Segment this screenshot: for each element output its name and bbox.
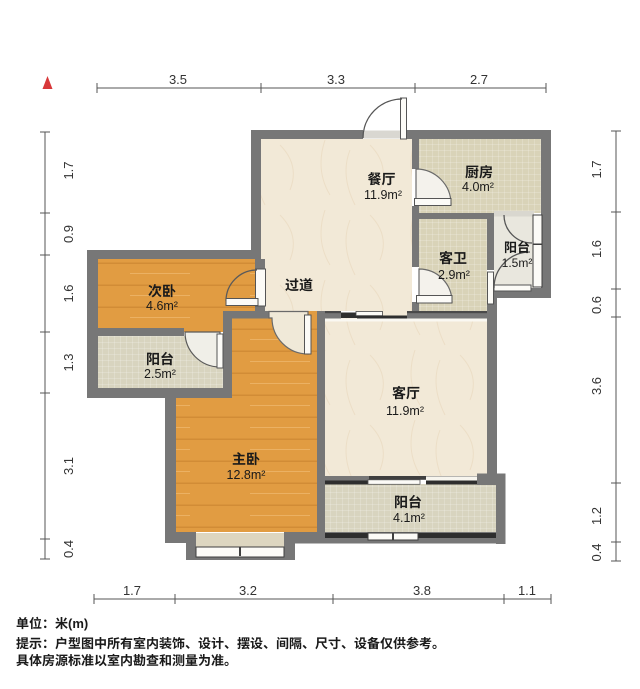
svg-text:4.6m²: 4.6m² <box>146 299 178 313</box>
svg-text:1.6: 1.6 <box>61 284 76 302</box>
svg-text:2.5m²: 2.5m² <box>144 367 176 381</box>
svg-text:3.5: 3.5 <box>169 72 187 87</box>
svg-text:3.3: 3.3 <box>327 72 345 87</box>
svg-text:4.1m²: 4.1m² <box>393 511 425 525</box>
svg-text:3.6: 3.6 <box>589 377 604 395</box>
svg-text:1.1: 1.1 <box>518 583 536 598</box>
svg-text:3.8: 3.8 <box>413 583 431 598</box>
svg-text:0.6: 0.6 <box>589 296 604 314</box>
svg-text:2.9m²: 2.9m² <box>438 268 470 282</box>
svg-text:2.7: 2.7 <box>470 72 488 87</box>
svg-text:3.2: 3.2 <box>239 583 257 598</box>
svg-text:1.6: 1.6 <box>589 240 604 258</box>
svg-text:0.9: 0.9 <box>61 225 76 243</box>
svg-text:1.3: 1.3 <box>61 353 76 371</box>
svg-text:1.2: 1.2 <box>589 507 604 525</box>
svg-text:11.9m²: 11.9m² <box>364 188 402 202</box>
svg-text:1.7: 1.7 <box>61 161 76 179</box>
svg-text:(m): (m) <box>68 616 88 631</box>
svg-text:1.7: 1.7 <box>589 160 604 178</box>
svg-text:11.9m²: 11.9m² <box>386 404 424 418</box>
svg-text:1.5m²: 1.5m² <box>502 256 533 270</box>
svg-text:0.4: 0.4 <box>61 540 76 558</box>
svg-text:12.8m²: 12.8m² <box>227 468 266 482</box>
svg-text:0.4: 0.4 <box>589 543 604 561</box>
svg-text:4.0m²: 4.0m² <box>462 180 494 194</box>
svg-text:1.7: 1.7 <box>123 583 141 598</box>
svg-text:3.1: 3.1 <box>61 457 76 475</box>
